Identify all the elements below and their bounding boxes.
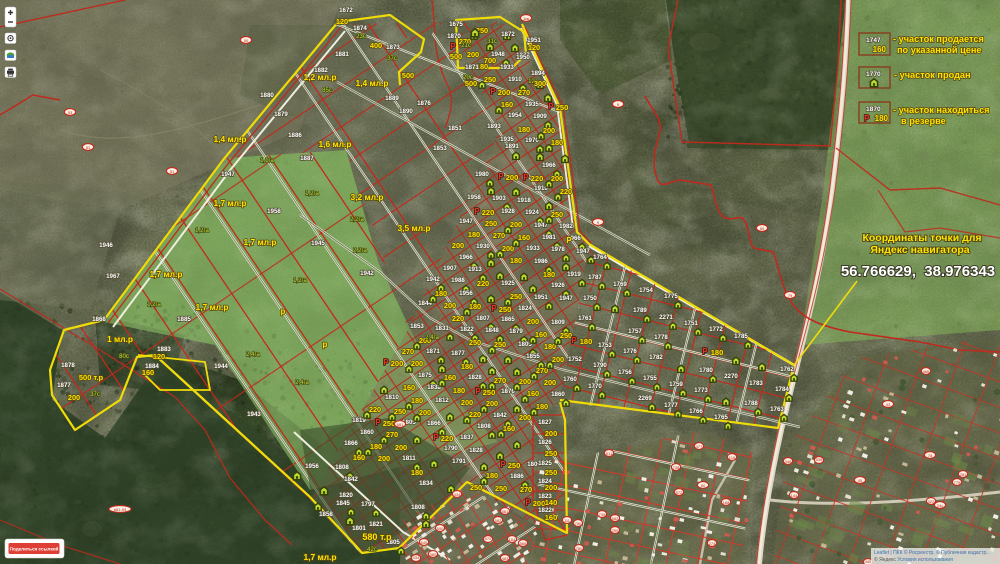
svg-text:160: 160 [503,424,515,433]
svg-text:380: 380 [430,552,437,557]
svg-text:250: 250 [508,461,521,470]
svg-text:1750: 1750 [583,295,597,302]
svg-text:1855: 1855 [526,353,540,360]
svg-text:1946: 1946 [99,242,113,249]
svg-text:168: 168 [723,500,730,505]
svg-text:1870: 1870 [447,33,461,40]
svg-text:434: 434 [454,492,461,497]
svg-text:500 т.р: 500 т.р [79,373,104,382]
svg-text:160: 160 [535,330,547,339]
svg-text:1842: 1842 [493,412,507,419]
svg-text:1956: 1956 [305,463,319,470]
svg-text:250: 250 [545,449,558,458]
svg-text:1675: 1675 [449,21,463,28]
svg-text:1907: 1907 [443,265,457,272]
svg-text:445: 445 [865,559,872,564]
svg-text:250: 250 [394,407,406,416]
svg-text:1886: 1886 [288,132,302,139]
svg-text:200: 200 [68,393,80,402]
svg-text:2271: 2271 [659,314,673,321]
svg-text:31с: 31с [487,39,497,45]
svg-text:1913: 1913 [468,266,482,273]
svg-text:160: 160 [142,368,154,377]
svg-text:116: 116 [729,455,736,460]
svg-text:1933: 1933 [500,64,514,71]
svg-text:1762: 1762 [780,366,794,373]
svg-text:1757: 1757 [628,328,642,335]
svg-text:1958: 1958 [267,208,281,215]
svg-text:180: 180 [510,256,522,265]
svg-text:180: 180 [536,402,548,411]
svg-text:270: 270 [386,430,398,439]
svg-text:1810: 1810 [385,394,399,401]
svg-text:1845: 1845 [336,500,350,507]
svg-text:1 мл.р: 1 мл.р [107,334,133,344]
svg-text:37с: 37с [90,392,100,398]
svg-text:1926: 1926 [551,282,565,289]
svg-text:1801: 1801 [352,525,366,532]
svg-text:200: 200 [551,174,563,183]
svg-text:1764: 1764 [593,254,607,261]
svg-text:1947: 1947 [559,295,573,302]
svg-text:Р: Р [498,172,504,181]
svg-text:1925: 1925 [501,280,515,287]
svg-text:1868: 1868 [92,316,106,323]
svg-text:1770: 1770 [866,71,881,78]
svg-text:Р: Р [566,236,572,245]
svg-text:1791: 1791 [452,458,466,465]
svg-text:1828: 1828 [468,374,482,381]
svg-text:1885: 1885 [177,316,191,323]
svg-text:в резерве: в резерве [901,116,946,126]
svg-text:348: 348 [785,459,792,464]
svg-text:180: 180 [411,468,423,477]
svg-text:1890: 1890 [399,108,413,115]
svg-text:1842: 1842 [344,476,358,483]
svg-text:250: 250 [556,103,569,112]
svg-text:1981: 1981 [542,234,556,241]
svg-text:200: 200 [378,454,390,463]
svg-text:200: 200 [419,408,431,417]
svg-text:568: 568 [520,541,527,546]
svg-text:645: 645 [421,540,428,545]
svg-text:180: 180 [486,471,498,480]
svg-text:79: 79 [788,293,793,298]
svg-text:1,7 мл.р: 1,7 мл.р [214,198,247,208]
svg-text:1783: 1783 [749,380,763,387]
svg-text:1988: 1988 [451,277,465,284]
svg-text:160: 160 [873,45,887,54]
svg-text:1812: 1812 [435,397,449,404]
svg-text:511: 511 [606,451,613,456]
svg-text:1871: 1871 [465,64,479,71]
svg-text:1789: 1789 [633,307,647,314]
svg-text:Р: Р [523,173,529,182]
svg-text:160: 160 [527,389,539,398]
svg-text:1,7 мл.р: 1,7 мл.р [196,302,229,312]
svg-text:1876: 1876 [417,100,431,107]
svg-text:1761: 1761 [578,315,592,322]
svg-text:572: 572 [485,536,492,541]
svg-text:1837: 1837 [460,434,474,441]
svg-text:1879: 1879 [509,328,523,335]
svg-text:1,4 мл.р: 1,4 мл.р [356,78,389,88]
svg-text:Р: Р [433,433,439,442]
svg-text:1822: 1822 [460,326,474,333]
svg-text:1775: 1775 [664,293,678,300]
svg-text:1747: 1747 [866,37,881,44]
svg-text:164: 164 [509,537,516,542]
svg-text:1,4 мл.р: 1,4 мл.р [214,134,247,144]
svg-text:1891: 1891 [505,143,519,150]
svg-text:1754: 1754 [639,287,653,294]
svg-text:Р: Р [571,336,577,345]
svg-text:45: 45 [858,478,863,483]
svg-text:780: 780 [576,546,583,551]
svg-text:1756: 1756 [618,369,632,376]
svg-text:1950: 1950 [516,54,530,61]
svg-text:180: 180 [551,138,563,147]
svg-text:160: 160 [403,383,415,392]
svg-text:Р: Р [525,498,531,507]
svg-text:Р: Р [450,42,456,51]
svg-text:400: 400 [370,41,382,50]
svg-text:250: 250 [551,210,563,219]
svg-text:561: 561 [502,509,509,514]
svg-text:281: 281 [960,472,967,477]
svg-text:50: 50 [244,38,249,43]
svg-text:1763: 1763 [770,406,784,413]
svg-text:250: 250 [499,305,512,314]
svg-text:220: 220 [482,208,495,217]
svg-text:43: 43 [886,402,891,407]
svg-text:1875: 1875 [418,372,432,379]
svg-text:200: 200 [452,241,464,250]
svg-text:1753: 1753 [598,342,612,349]
svg-text:1853: 1853 [433,145,447,152]
svg-text:160: 160 [353,453,365,462]
svg-text:1,6 мл.р: 1,6 мл.р [319,139,352,149]
svg-text:466: 466 [923,369,930,374]
svg-text:1878: 1878 [61,362,75,369]
svg-text:500: 500 [450,52,462,61]
svg-text:120: 120 [336,17,348,26]
svg-text:1,7 мл.р: 1,7 мл.р [304,552,337,562]
svg-text:220: 220 [531,174,544,183]
svg-text:140: 140 [545,498,558,507]
svg-text:477: 477 [696,444,703,449]
svg-text:1942: 1942 [426,276,440,283]
svg-text:1765: 1765 [714,414,728,421]
svg-text:1,2га: 1,2га [293,278,307,284]
svg-text:1831: 1831 [435,325,449,332]
svg-text:500: 500 [465,79,477,88]
svg-text:483: 483 [502,556,509,561]
svg-text:200: 200 [498,88,511,97]
svg-text:500: 500 [437,526,444,531]
svg-text:120: 120 [153,352,165,361]
svg-text:220: 220 [369,405,381,414]
svg-text:Р: Р [864,113,870,123]
svg-text:1790: 1790 [593,362,607,369]
svg-text:580 т.р: 580 т.р [362,532,392,542]
svg-text:1826: 1826 [538,439,552,446]
svg-text:1672: 1672 [339,7,353,14]
svg-text:2270: 2270 [724,373,738,380]
svg-text:1947: 1947 [576,248,590,255]
svg-text:682: 682 [612,516,619,521]
svg-text:1,2га: 1,2га [305,191,319,197]
svg-text:2,4га: 2,4га [246,352,260,358]
svg-text:1945: 1945 [311,240,325,247]
svg-text:200: 200 [545,483,558,492]
svg-text:2,2га: 2,2га [350,217,364,223]
svg-text:1787: 1787 [588,274,602,281]
svg-text:250: 250 [495,484,507,493]
svg-text:180: 180 [435,289,447,298]
svg-text:180: 180 [875,114,889,123]
svg-text:220: 220 [560,187,572,196]
svg-text:1760: 1760 [563,376,577,383]
svg-text:250: 250 [560,331,572,340]
svg-text:1982: 1982 [559,223,573,230]
svg-text:1797: 1797 [361,501,375,508]
svg-text:1,7 мл.р: 1,7 мл.р [150,269,183,279]
svg-text:434: 434 [413,555,420,560]
svg-text:200: 200 [519,413,531,422]
svg-text:681: 681 [397,422,404,427]
svg-text:180: 180 [711,348,724,357]
svg-text:322: 322 [928,499,935,504]
svg-text:51: 51 [86,145,91,150]
svg-text:1755: 1755 [643,375,657,382]
svg-text:80с: 80с [119,354,129,360]
svg-text:Р: Р [474,207,480,216]
svg-text:180: 180 [453,386,465,395]
svg-text:1894: 1894 [531,70,545,77]
svg-text:200: 200 [552,355,564,364]
svg-text:1942: 1942 [360,270,374,277]
svg-text:200: 200 [395,443,407,452]
svg-text:1834: 1834 [419,480,433,487]
svg-text:250: 250 [485,219,497,228]
svg-text:1773: 1773 [694,387,708,394]
svg-text:200: 200 [510,220,522,229]
svg-text:220: 220 [452,314,464,323]
svg-text:1808: 1808 [335,464,349,471]
svg-text:1879: 1879 [274,111,288,118]
svg-text:160: 160 [545,513,558,522]
svg-text:1766: 1766 [689,408,703,415]
svg-text:220: 220 [477,279,489,288]
svg-text:1919: 1919 [567,271,581,278]
svg-text:180: 180 [468,230,480,239]
svg-text:160: 160 [518,233,530,242]
svg-text:3,2 мл.р: 3,2 мл.р [351,192,384,202]
svg-text:1851: 1851 [448,125,462,132]
svg-text:2,2га: 2,2га [353,248,367,254]
svg-text:1,1га: 1,1га [260,158,274,164]
svg-text:250: 250 [510,292,522,301]
svg-text:1кв: 1кв [523,16,529,21]
svg-text:1788: 1788 [744,400,758,407]
svg-text:1860: 1860 [360,429,374,436]
svg-text:1820: 1820 [339,492,353,499]
svg-text:37с: 37с [387,56,397,62]
svg-text:160: 160 [501,100,513,109]
svg-text:200: 200 [544,378,556,387]
svg-text:538: 538 [816,457,823,462]
svg-text:Р: Р [702,347,708,356]
svg-text:250: 250 [494,340,506,349]
svg-text:Р: Р [383,358,389,367]
svg-text:Р: Р [548,102,554,111]
svg-text:1903: 1903 [492,195,506,202]
svg-text:1777: 1777 [664,402,678,409]
svg-text:1881: 1881 [335,51,349,58]
svg-text:1848: 1848 [485,327,499,334]
svg-text:500: 500 [402,71,414,80]
svg-text:250: 250 [545,468,558,477]
svg-text:1918: 1918 [517,197,531,204]
svg-text:1986: 1986 [534,258,548,265]
svg-text:1778: 1778 [654,334,668,341]
svg-text:1759: 1759 [669,381,683,388]
svg-text:270: 270 [493,231,505,240]
svg-text:1858: 1858 [319,511,333,518]
svg-text:582: 582 [495,518,502,523]
svg-text:2269: 2269 [638,395,652,402]
svg-text:1,7 мл.р: 1,7 мл.р [244,237,277,247]
svg-text:1808: 1808 [411,504,425,511]
svg-text:1880: 1880 [260,92,274,99]
svg-text:250: 250 [484,75,496,84]
svg-text:Р: Р [490,87,496,96]
svg-text:750: 750 [575,521,582,526]
svg-text:111: 111 [564,518,571,523]
svg-text:1784: 1784 [775,386,789,393]
svg-text:775: 775 [954,480,961,485]
svg-text:1828: 1828 [469,447,483,454]
svg-text:1770: 1770 [588,383,602,390]
svg-text:1871: 1871 [426,348,440,355]
svg-text:1752: 1752 [568,356,582,363]
svg-text:1947: 1947 [459,218,473,225]
svg-text:144: 144 [791,493,798,498]
svg-text:1924: 1924 [525,209,539,216]
svg-text:1877: 1877 [451,350,465,357]
svg-text:1,2га: 1,2га [195,228,209,234]
svg-text:3,5 мл.р: 3,5 мл.р [398,223,431,233]
svg-text:220: 220 [469,410,481,419]
svg-text:270: 270 [518,88,530,97]
svg-text:1966: 1966 [542,162,556,169]
svg-text:1776: 1776 [623,348,637,355]
svg-text:2,4га: 2,4га [295,380,309,386]
svg-text:274: 274 [709,541,716,546]
svg-text:1889: 1889 [385,95,399,102]
svg-text:200: 200 [519,377,531,386]
svg-text:1853: 1853 [410,323,424,330]
svg-text:270: 270 [402,347,414,356]
svg-text:- участок продан: - участок продан [894,70,971,80]
svg-text:200: 200 [545,429,558,438]
svg-text:по указанной цене: по указанной цене [897,45,982,55]
svg-text:78: 78 [928,453,933,458]
svg-text:- участок находиться: - участок находиться [893,105,990,115]
svg-text:700: 700 [484,56,496,65]
svg-text:200: 200 [527,317,539,326]
svg-text:1935: 1935 [525,101,539,108]
svg-text:1910: 1910 [508,76,522,83]
svg-text:23с: 23с [356,34,366,40]
svg-text:300: 300 [534,79,546,88]
svg-text:Координаты точки для: Координаты точки для [862,232,981,244]
svg-text:200: 200 [411,359,423,368]
svg-text:24с: 24с [937,503,943,508]
svg-text:250: 250 [469,338,481,347]
svg-text:51: 51 [170,169,175,174]
svg-text:1966: 1966 [459,254,473,261]
svg-text:180: 180 [543,270,555,279]
svg-text:Р: Р [475,387,481,396]
svg-text:200: 200 [391,359,404,368]
svg-text:1872: 1872 [501,31,515,38]
svg-text:200: 200 [467,50,479,59]
svg-text:Яндекс навигатора: Яндекс навигатора [870,244,969,256]
svg-text:1866: 1866 [427,420,441,427]
svg-text:270: 270 [520,485,532,494]
svg-text:1877: 1877 [57,382,71,389]
svg-text:1873: 1873 [386,44,400,51]
svg-text:53: 53 [68,110,73,115]
svg-text:1958: 1958 [467,194,481,201]
svg-text:1870: 1870 [866,106,881,113]
svg-text:1782: 1782 [649,354,663,361]
svg-text:42с: 42с [367,547,377,553]
svg-text:1980: 1980 [475,171,489,178]
svg-text:200: 200 [461,398,473,407]
svg-text:Р: Р [491,304,497,313]
svg-text:200: 200 [444,301,456,310]
svg-text:50: 50 [701,483,706,488]
svg-text:270: 270 [494,376,506,385]
svg-text:1865: 1865 [501,316,515,323]
svg-text:1956: 1956 [459,290,473,297]
svg-text:220: 220 [441,434,454,443]
svg-text:1909: 1909 [533,113,547,120]
svg-text:1809: 1809 [551,319,565,326]
svg-text:1943: 1943 [247,411,261,418]
svg-text:200: 200 [506,173,519,182]
svg-text:1933: 1933 [526,245,540,252]
svg-text:21с: 21с [461,43,471,49]
svg-text:180: 180 [469,302,481,311]
svg-text:1954: 1954 [508,112,522,119]
svg-text:1785: 1785 [734,333,748,340]
svg-text:р: р [281,307,286,316]
svg-text:1928: 1928 [501,208,515,215]
svg-text:1882: 1882 [314,67,328,74]
svg-text:© Яндекс Условия использования: © Яндекс Условия использования [874,556,953,563]
svg-text:120: 120 [528,43,540,52]
svg-text:1827: 1827 [538,419,552,426]
svg-text:1821: 1821 [369,521,383,528]
svg-text:2,4га: 2,4га [425,335,439,341]
svg-text:1866: 1866 [344,440,358,447]
svg-text:Leaflet | ПКК © Росреестр, © П: Leaflet | ПКК © Росреестр, © Публичная к… [874,549,989,556]
svg-text:739: 739 [599,512,606,517]
